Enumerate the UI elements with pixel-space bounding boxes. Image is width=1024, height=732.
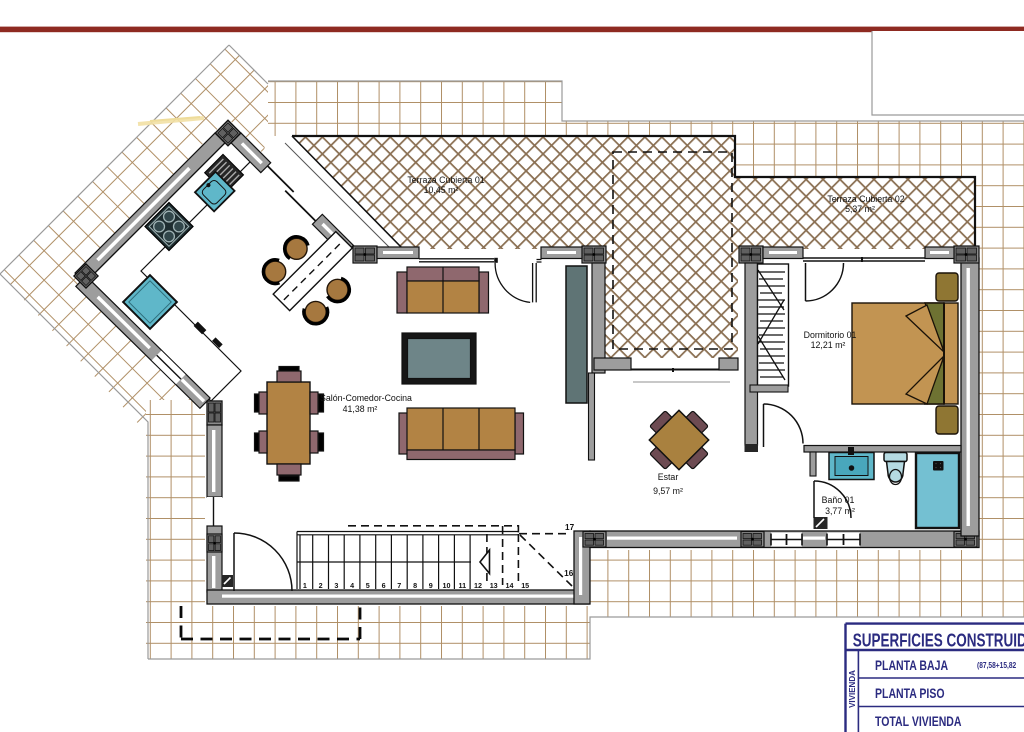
- svg-text:3,77 m²: 3,77 m²: [825, 506, 855, 516]
- svg-text:Terraza Cubierta 01: Terraza Cubierta 01: [407, 175, 484, 185]
- svg-text:Dormitorio 01: Dormitorio 01: [804, 330, 857, 340]
- svg-text:PLANTA BAJA: PLANTA BAJA: [875, 658, 948, 674]
- svg-text:Baño 01: Baño 01: [822, 495, 855, 505]
- svg-text:13: 13: [490, 581, 498, 590]
- svg-text:1: 1: [303, 581, 307, 590]
- svg-text:2: 2: [319, 581, 323, 590]
- svg-text:(87,58+15,82: (87,58+15,82: [977, 660, 1016, 670]
- svg-text:16: 16: [564, 569, 574, 578]
- svg-text:Estar: Estar: [658, 472, 679, 482]
- svg-text:14: 14: [506, 581, 514, 590]
- svg-text:17: 17: [565, 523, 575, 532]
- svg-text:9,57 m²: 9,57 m²: [653, 486, 683, 496]
- svg-text:3: 3: [334, 581, 338, 590]
- svg-text:SUPERFICIES CONSTRUIDAS: SUPERFICIES CONSTRUIDAS: [853, 631, 1024, 652]
- svg-text:41,38 m²: 41,38 m²: [343, 404, 378, 414]
- svg-text:Terraza Cubierta 02: Terraza Cubierta 02: [827, 194, 904, 204]
- svg-text:12,21 m²: 12,21 m²: [811, 340, 846, 350]
- svg-text:10: 10: [443, 581, 451, 590]
- svg-text:4: 4: [350, 581, 354, 590]
- svg-text:5: 5: [366, 581, 370, 590]
- svg-text:11: 11: [458, 581, 466, 590]
- svg-text:Salón-Comedor-Cocina: Salón-Comedor-Cocina: [320, 393, 412, 403]
- svg-text:PLANTA PISO: PLANTA PISO: [875, 686, 945, 702]
- svg-text:15: 15: [521, 581, 529, 590]
- svg-text:7: 7: [397, 581, 401, 590]
- svg-text:10,45 m²: 10,45 m²: [424, 185, 459, 195]
- svg-text:12: 12: [474, 581, 482, 590]
- svg-text:8: 8: [413, 581, 417, 590]
- svg-text:9: 9: [429, 581, 433, 590]
- svg-text:5,37 m²: 5,37 m²: [845, 204, 875, 214]
- svg-text:VIVIENDA: VIVIENDA: [848, 670, 857, 708]
- svg-text:6: 6: [382, 581, 386, 590]
- svg-text:TOTAL VIVIENDA: TOTAL VIVIENDA: [875, 714, 962, 730]
